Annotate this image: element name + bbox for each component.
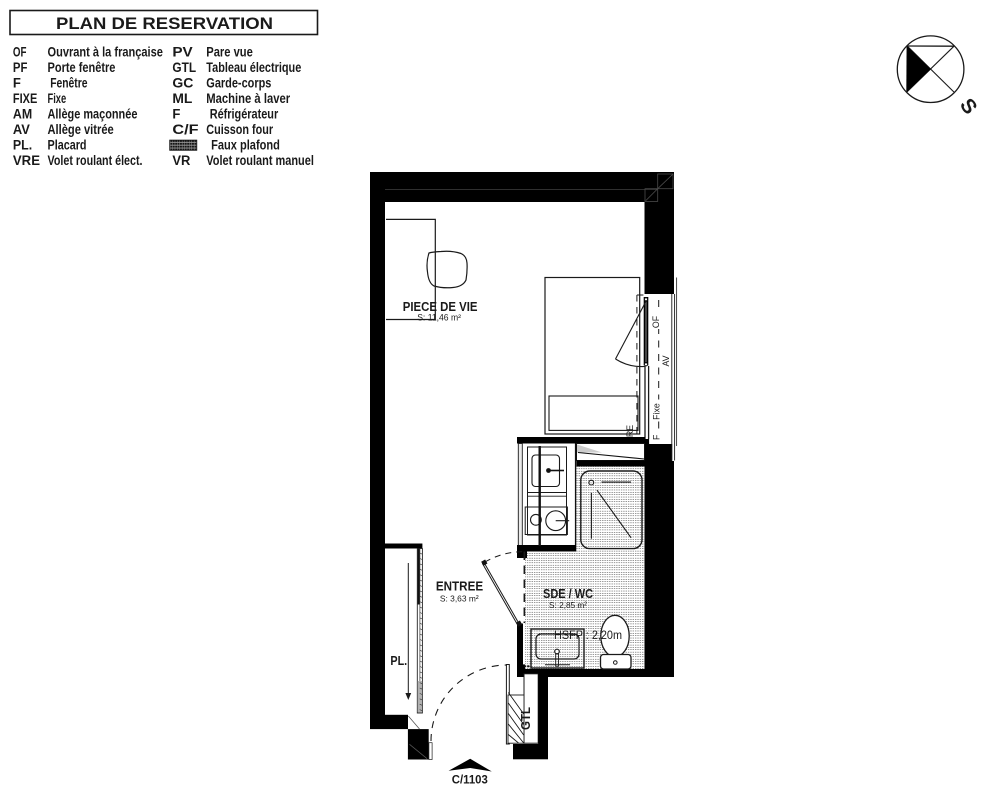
- svg-text:S: S: [955, 94, 982, 118]
- svg-text:Allège maçonnée: Allège maçonnée: [48, 106, 138, 121]
- svg-text:PL.: PL.: [13, 137, 32, 152]
- svg-text:Cuisson four: Cuisson four: [206, 122, 273, 137]
- svg-text:OF: OF: [13, 44, 27, 59]
- svg-text:Tableau électrique: Tableau électrique: [206, 60, 301, 75]
- svg-text:Allège vitrée: Allège vitrée: [48, 122, 115, 137]
- svg-text:GC: GC: [172, 75, 193, 90]
- svg-text:ML: ML: [172, 91, 192, 106]
- svg-text:AV: AV: [13, 122, 30, 137]
- svg-text:Machine à laver: Machine à laver: [206, 91, 290, 106]
- svg-text:PV: PV: [172, 44, 192, 59]
- svg-text:F: F: [172, 106, 180, 121]
- svg-text:Volet roulant élect.: Volet roulant élect.: [48, 153, 143, 168]
- svg-text:Faux plafond: Faux plafond: [211, 137, 280, 152]
- svg-text:GTL: GTL: [519, 707, 533, 730]
- svg-text:AV: AV: [661, 355, 671, 366]
- svg-text:FIXE: FIXE: [13, 91, 37, 106]
- svg-text:S: 2,85 m²: S: 2,85 m²: [549, 600, 587, 610]
- svg-text:C/F: C/F: [172, 122, 198, 137]
- svg-text:PF: PF: [13, 60, 28, 75]
- svg-text:SDE / WC: SDE / WC: [543, 587, 593, 601]
- svg-text:Porte fenêtre: Porte fenêtre: [48, 60, 116, 75]
- svg-text:HSFP : 2,20m: HSFP : 2,20m: [554, 628, 622, 642]
- svg-text:F: F: [651, 434, 661, 440]
- svg-text:Fixe: Fixe: [651, 403, 661, 420]
- svg-text:Volet roulant manuel: Volet roulant manuel: [206, 153, 314, 168]
- svg-text:VRE: VRE: [13, 153, 40, 168]
- svg-text:OF: OF: [651, 315, 661, 328]
- svg-text:Placard: Placard: [48, 137, 87, 152]
- svg-text:ENTREE: ENTREE: [436, 580, 483, 594]
- svg-text:PLAN DE RESERVATION: PLAN DE RESERVATION: [56, 14, 273, 33]
- svg-text:Fenêtre: Fenêtre: [50, 75, 88, 90]
- svg-text:AM: AM: [13, 106, 32, 121]
- svg-text:S: 11,46 m²: S: 11,46 m²: [417, 313, 461, 323]
- svg-text:Pare vue: Pare vue: [206, 44, 253, 59]
- svg-text:VR: VR: [172, 153, 190, 168]
- svg-text:Garde-corps: Garde-corps: [206, 75, 271, 90]
- svg-text:Ouvrant à la française: Ouvrant à la française: [48, 44, 164, 59]
- svg-text:PL.: PL.: [390, 653, 407, 668]
- svg-text:C/1103: C/1103: [452, 775, 488, 787]
- svg-text:Réfrigérateur: Réfrigérateur: [210, 106, 279, 121]
- svg-text:S: 3,63 m²: S: 3,63 m²: [440, 594, 479, 604]
- svg-text:Fixe: Fixe: [48, 91, 67, 106]
- svg-text:GTL: GTL: [172, 60, 196, 75]
- svg-text:F: F: [13, 75, 21, 90]
